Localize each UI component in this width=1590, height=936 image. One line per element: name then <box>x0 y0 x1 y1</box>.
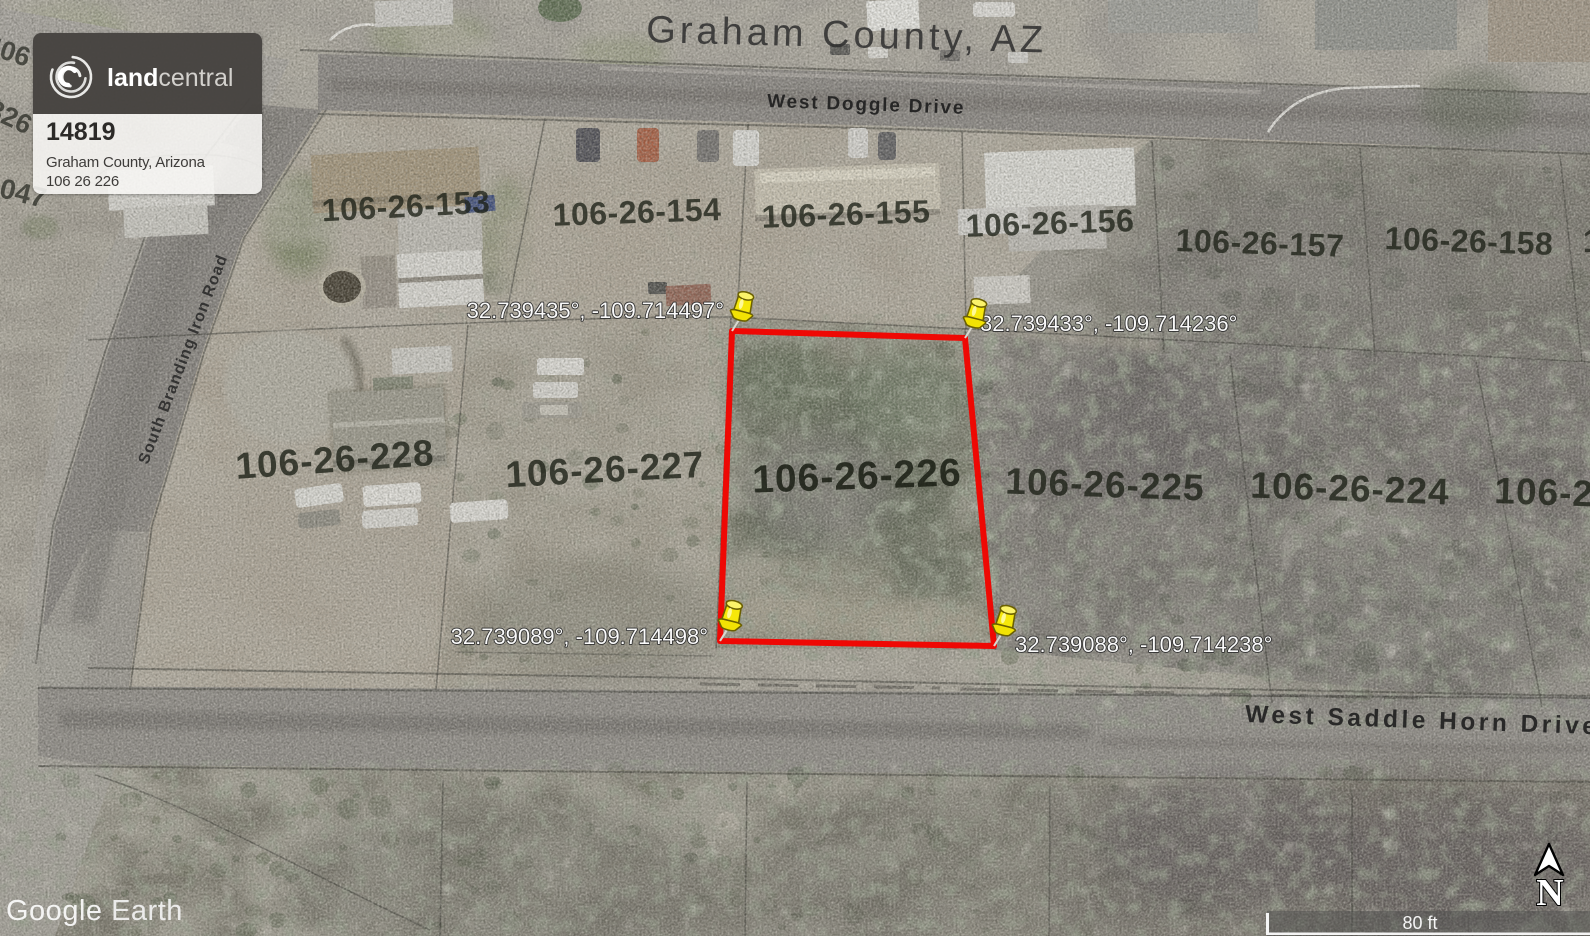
svg-text:80 ft: 80 ft <box>1402 913 1437 933</box>
svg-text:106-26-224: 106-26-224 <box>1250 465 1451 513</box>
svg-text:Google Earth: Google Earth <box>6 895 183 927</box>
svg-text:32.739089°, -109.714498°: 32.739089°, -109.714498° <box>451 624 708 649</box>
svg-text:106-26-225: 106-26-225 <box>1005 461 1206 509</box>
svg-text:106-26-226: 106-26-226 <box>752 451 963 501</box>
svg-text:32.739435°, -109.714497°: 32.739435°, -109.714497° <box>467 298 724 323</box>
svg-text:32.739433°, -109.714236°: 32.739433°, -109.714236° <box>980 311 1237 336</box>
svg-text:32.739088°, -109.714238°: 32.739088°, -109.714238° <box>1015 632 1272 657</box>
svg-text:106-26-154: 106-26-154 <box>552 191 722 233</box>
svg-text:106-26-155: 106-26-155 <box>761 193 931 235</box>
svg-text:106-26-158: 106-26-158 <box>1384 220 1554 262</box>
svg-text:106-26-156: 106-26-156 <box>965 202 1135 244</box>
svg-text:106-2: 106-2 <box>1494 470 1590 514</box>
svg-text:N: N <box>1536 872 1563 914</box>
svg-text:106-26-157: 106-26-157 <box>1175 222 1345 264</box>
svg-text:10: 10 <box>1583 223 1590 259</box>
